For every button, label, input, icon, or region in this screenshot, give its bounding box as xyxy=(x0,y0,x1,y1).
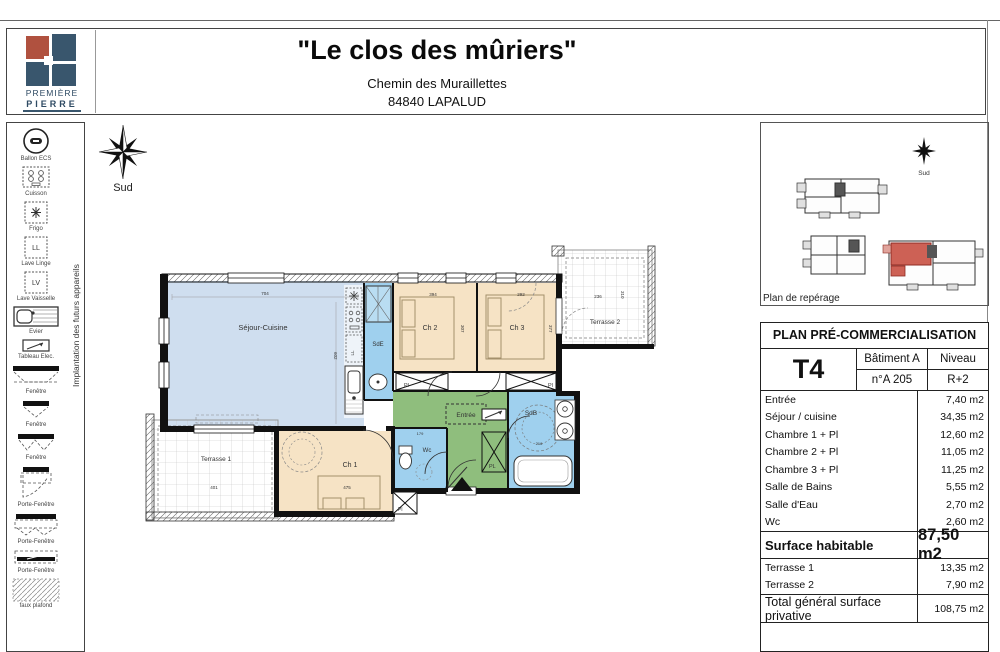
legend-item: Porte-Fenêtre xyxy=(17,465,54,508)
svg-text:Ch 3: Ch 3 xyxy=(510,325,525,332)
table-row: Chambre 1 + Pl12,60 m2 xyxy=(761,426,988,444)
sidebar-vertical-label: Implantation des futurs appareils xyxy=(71,161,81,491)
svg-text:LV: LV xyxy=(32,280,40,287)
room-terrasse-2: Terrasse 2 236 310 xyxy=(552,246,655,349)
svg-text:Terrasse 2: Terrasse 2 xyxy=(590,319,621,326)
logo-text-pierre: PIERRE xyxy=(23,99,81,112)
window-icon xyxy=(21,399,51,421)
unit-type: T4 xyxy=(761,349,857,390)
svg-text:Sud: Sud xyxy=(918,170,930,177)
svg-text:LL: LL xyxy=(350,350,355,356)
legend-item: Evier xyxy=(13,306,59,335)
legend-item: LV Lave Vaisselle xyxy=(17,271,55,302)
svg-text:PL: PL xyxy=(489,464,496,470)
electrical-panel-icon xyxy=(22,339,50,353)
compass: Sud xyxy=(92,124,154,194)
building-outline xyxy=(797,179,887,218)
washing-machine-icon: LL xyxy=(23,236,49,260)
table-title: PLAN PRÉ-COMMERCIALISATION xyxy=(761,323,988,349)
svg-text:Ch 1: Ch 1 xyxy=(343,462,358,469)
table-row: Séjour / cuisine34,35 m2 xyxy=(761,409,988,427)
svg-text:216: 216 xyxy=(536,441,543,446)
surface-habitable-row: Surface habitable87,50 m2 xyxy=(761,531,988,559)
table-head: T4 Bâtiment A n°A 205 Niveau R+2 xyxy=(761,349,988,391)
svg-text:Pl: Pl xyxy=(548,383,553,389)
dishwasher-icon: LV xyxy=(23,271,49,295)
french-door-icon xyxy=(18,465,54,501)
niveau-value: R+2 xyxy=(928,370,988,390)
svg-text:401: 401 xyxy=(210,485,218,490)
svg-text:307: 307 xyxy=(460,325,465,333)
legend-sidebar: Ballon ECS Cuisson xyxy=(6,122,85,652)
svg-text:236: 236 xyxy=(594,294,602,299)
french-door-icon xyxy=(13,549,59,567)
compass-rose-icon xyxy=(92,124,154,182)
hatched-area-icon xyxy=(12,578,60,602)
table-row: Entrée7,40 m2 xyxy=(761,391,988,409)
legend-item: Porte-Fenêtre xyxy=(13,512,59,545)
batiment: Bâtiment A xyxy=(857,349,927,370)
closet-pl-wc xyxy=(393,492,417,514)
building-outline-highlighted xyxy=(883,241,983,290)
water-heater-icon xyxy=(21,127,51,155)
plan-sheet: PREMIÈRE PIERRE "Le clos des mûriers" Ch… xyxy=(0,0,1000,652)
svg-text:377: 377 xyxy=(548,325,553,333)
table-row: Terrasse 27,90 m2 xyxy=(761,577,988,595)
svg-text:Terrasse 1: Terrasse 1 xyxy=(201,456,232,463)
french-door-icon xyxy=(13,512,59,538)
svg-text:SdE: SdE xyxy=(372,342,383,348)
legend-item: Frigo xyxy=(23,201,49,232)
svg-text:Pl: Pl xyxy=(404,383,409,389)
project-title: "Le clos des mûriers" xyxy=(157,35,717,66)
logo-text-premiere: PREMIÈRE xyxy=(9,88,95,98)
svg-text:Wc: Wc xyxy=(423,448,432,454)
minimap-compass-icon: Sud xyxy=(911,137,936,177)
legend-item: faux plafond xyxy=(12,578,60,609)
legend-item: Tableau Elec. xyxy=(18,339,54,360)
svg-text:Ch 2: Ch 2 xyxy=(423,325,438,332)
lot-number: n°A 205 xyxy=(857,370,927,390)
address-street: Chemin des Muraillettes xyxy=(157,75,717,93)
legend-item: Fenêtre xyxy=(21,399,51,428)
niveau-label: Niveau xyxy=(928,349,988,370)
highlighted-unit xyxy=(891,243,931,265)
svg-text:704: 704 xyxy=(261,291,269,296)
svg-text:292: 292 xyxy=(517,292,525,297)
legend-item: Cuisson xyxy=(21,166,51,197)
logo-squares-icon xyxy=(25,34,79,86)
total-row: Total général surface privative108,75 m2 xyxy=(761,594,988,623)
legend-item: Fenêtre xyxy=(11,364,61,395)
logo: PREMIÈRE PIERRE xyxy=(9,30,96,113)
floor-plan: Terrasse 2 236 310 Terrasse 1 401 xyxy=(140,240,675,542)
window-icon xyxy=(16,432,56,454)
location-map: Sud xyxy=(760,122,989,306)
table-row: Salle d'Eau2,70 m2 xyxy=(761,496,988,514)
table-row: Salle de Bains5,55 m2 xyxy=(761,479,988,497)
svg-text:475: 475 xyxy=(343,485,351,490)
tableau-electrique xyxy=(482,409,506,420)
svg-text:Pl: Pl xyxy=(398,507,402,513)
legend-item: LL Lave Linge xyxy=(21,236,50,267)
svg-text:Entrée: Entrée xyxy=(456,412,476,419)
surface-table: PLAN PRÉ-COMMERCIALISATION T4 Bâtiment A… xyxy=(760,322,989,652)
legend-item: Fenêtre xyxy=(16,432,56,461)
compass-label: Sud xyxy=(92,182,154,194)
svg-text:310: 310 xyxy=(620,291,625,299)
legend-item: Ballon ECS xyxy=(21,127,52,162)
svg-text:179: 179 xyxy=(417,431,424,436)
building-outline xyxy=(803,236,865,274)
minimap-caption: Plan de repérage xyxy=(763,293,840,304)
table-row: Terrasse 113,35 m2 xyxy=(761,559,988,577)
page-top-rule xyxy=(0,20,1000,21)
table-row: Chambre 3 + Pl11,25 m2 xyxy=(761,461,988,479)
fridge-icon xyxy=(23,201,49,225)
site-plan: Sud xyxy=(761,123,987,291)
svg-text:LL: LL xyxy=(32,245,40,252)
legend-item: Porte-Fenêtre xyxy=(13,549,59,574)
sink-icon xyxy=(13,306,59,328)
svg-text:394: 394 xyxy=(429,292,437,297)
svg-text:602: 602 xyxy=(333,352,338,360)
address-city: 84840 LAPALUD xyxy=(157,93,717,111)
svg-text:Séjour-Cuisine: Séjour-Cuisine xyxy=(238,323,287,332)
title-block: PREMIÈRE PIERRE "Le clos des mûriers" Ch… xyxy=(6,28,986,115)
table-row: Chambre 2 + Pl11,05 m2 xyxy=(761,444,988,462)
window-icon xyxy=(11,364,61,388)
cooktop-icon xyxy=(21,166,51,190)
